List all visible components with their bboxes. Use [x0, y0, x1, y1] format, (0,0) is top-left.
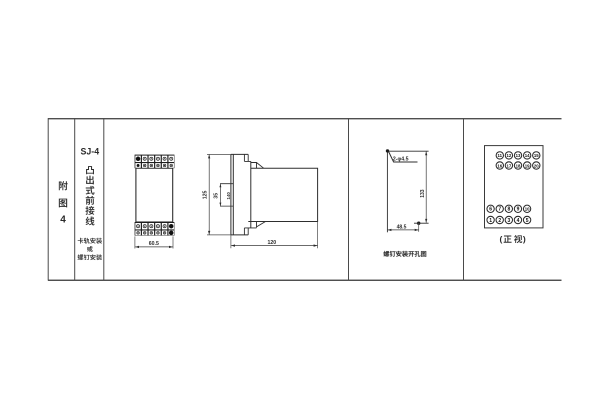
svg-text:125: 125 [203, 190, 209, 199]
svg-text:15: 15 [534, 153, 539, 158]
svg-text:133: 133 [420, 189, 426, 198]
svg-text:4: 4 [517, 218, 520, 224]
svg-text:10: 10 [525, 207, 530, 212]
svg-text:13: 13 [516, 153, 521, 158]
svg-text:16: 16 [497, 163, 502, 168]
svg-text:48.5: 48.5 [397, 224, 407, 230]
svg-text:3: 3 [507, 218, 510, 224]
svg-text:12: 12 [507, 153, 512, 158]
svg-text:18: 18 [516, 163, 521, 168]
svg-text:2: 2 [498, 218, 501, 224]
svg-text:6: 6 [489, 207, 492, 213]
svg-text:120: 120 [267, 240, 276, 246]
svg-text:4: 4 [60, 215, 66, 226]
svg-text:7: 7 [498, 207, 501, 213]
svg-text:60.5: 60.5 [149, 241, 159, 247]
svg-text:14: 14 [525, 153, 530, 158]
svg-text:8: 8 [507, 207, 510, 213]
svg-text:5: 5 [526, 218, 529, 224]
svg-text:35: 35 [214, 193, 220, 199]
svg-text:SJ-4: SJ-4 [81, 146, 100, 156]
svg-text:1: 1 [489, 218, 492, 224]
svg-text:20: 20 [534, 163, 539, 168]
svg-text:17: 17 [507, 163, 512, 168]
svg-text:19: 19 [525, 163, 530, 168]
svg-text:11: 11 [498, 153, 503, 158]
svg-text:(: ( [499, 234, 502, 244]
svg-text:140: 140 [226, 192, 231, 200]
svg-text:9: 9 [517, 207, 520, 213]
svg-text:): ) [523, 234, 526, 244]
svg-text:2-φ4.5: 2-φ4.5 [393, 157, 409, 163]
